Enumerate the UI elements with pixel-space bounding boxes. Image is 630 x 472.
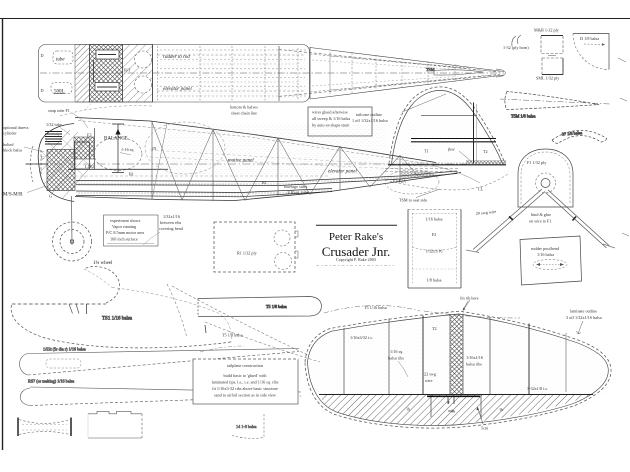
svg-text:R1 1/32 ply: R1 1/32 ply xyxy=(237,251,258,256)
svg-text:experiment shows: experiment shows xyxy=(110,218,141,223)
svg-text:1b: 1b xyxy=(499,407,503,412)
svg-text:balsa ribs: balsa ribs xyxy=(388,356,404,361)
svg-text:fuselage sides: fuselage sides xyxy=(284,184,308,189)
svg-text:cylinder: cylinder xyxy=(3,131,17,136)
svg-text:B/T: B/T xyxy=(124,68,131,73)
svg-text:tailcone outline: tailcone outline xyxy=(356,112,382,117)
svg-text:fuse: fuse xyxy=(448,147,455,152)
svg-text:D 1/8 balsa: D 1/8 balsa xyxy=(580,36,599,41)
svg-text:T2: T2 xyxy=(483,149,488,154)
svg-text:1/32x1/16: 1/32x1/16 xyxy=(163,214,180,219)
svg-text:all sweep & 1/16 balsa: all sweep & 1/16 balsa xyxy=(312,116,350,121)
svg-text:elevator panel: elevator panel xyxy=(328,170,357,175)
svg-text:1-32 (ply horn): 1-32 (ply horn) xyxy=(503,45,529,50)
svg-text:block balsa: block balsa xyxy=(3,148,22,153)
svg-text:SML 1/32 ply: SML 1/32 ply xyxy=(536,76,560,81)
svg-text:TSM to seat side: TSM to seat side xyxy=(399,198,427,203)
svg-text:T5 1/8 balsa: T5 1/8 balsa xyxy=(222,333,243,338)
svg-text:1/16 balsa: 1/16 balsa xyxy=(425,217,442,222)
svg-text:laminate outline: laminate outline xyxy=(570,309,597,314)
svg-text:wire: wire xyxy=(425,378,433,383)
svg-text:1/16x3/32 t.s.: 1/16x3/32 t.s. xyxy=(350,335,373,340)
svg-text:bottom & halves: bottom & halves xyxy=(230,105,258,110)
svg-text:3-32x1/8 t.s.: 3-32x1/8 t.s. xyxy=(527,386,548,391)
svg-text:motive panel: motive panel xyxy=(228,159,254,164)
svg-text:1/16 sq.: 1/16 sq. xyxy=(390,349,403,354)
svg-text:22 swg: 22 swg xyxy=(424,372,437,377)
svg-text:P/C 8.5mm motor area: P/C 8.5mm motor area xyxy=(106,230,144,235)
svg-text:M/S-M/B: M/S-M/B xyxy=(3,193,23,198)
svg-text:R1: R1 xyxy=(262,180,267,185)
svg-text:1/32 tube: 1/32 tube xyxy=(46,122,62,127)
svg-text:L1F2: L1F2 xyxy=(85,164,94,169)
svg-text:3 off 1/32x1/16 balsa: 3 off 1/32x1/16 balsa xyxy=(566,315,602,320)
svg-text:C: C xyxy=(41,155,44,160)
svg-text:1/32t (5r dia r) 1/16 balsa: 1/32t (5r dia r) 1/16 balsa xyxy=(43,347,86,352)
svg-text:on wire to F1: on wire to F1 xyxy=(529,219,551,224)
svg-text:RS7 (or making) 1/16 balsa: RS7 (or making) 1/16 balsa xyxy=(28,379,74,384)
svg-text:G: G xyxy=(49,194,52,199)
svg-text:1 off 1/32x1/16 balsa: 1 off 1/32x1/16 balsa xyxy=(352,118,388,123)
svg-text:tube: tube xyxy=(56,58,65,63)
svg-text:covering bend: covering bend xyxy=(159,226,184,231)
svg-text:bolted: bolted xyxy=(3,142,14,147)
svg-text:5cm: 5cm xyxy=(481,426,489,431)
svg-text:D: D xyxy=(41,88,44,93)
svg-text:Copyright P. Rake 2003: Copyright P. Rake 2003 xyxy=(336,257,376,262)
svg-text:T2: T2 xyxy=(432,326,437,331)
svg-text:1/16 sq. tube: 1/16 sq. tube xyxy=(287,190,309,195)
svg-text:sand to airfoil section as in: sand to airfoil section as in side view xyxy=(214,393,276,398)
svg-text:F2: F2 xyxy=(432,232,436,237)
svg-text:sheet chain line: sheet chain line xyxy=(231,111,257,116)
svg-text:1/16 balsa: 1/16 balsa xyxy=(537,252,554,257)
svg-text:F: F xyxy=(448,401,450,405)
svg-text:1b: 1b xyxy=(406,407,410,412)
svg-text:tailplane construction: tailplane construction xyxy=(227,363,264,368)
svg-text:1/8 balsa: 1/8 balsa xyxy=(426,278,441,283)
svg-text:1/32x1/16: 1/32x1/16 xyxy=(426,249,443,254)
svg-text:B1: B1 xyxy=(129,172,134,177)
svg-text:(N: (N xyxy=(152,146,156,151)
svg-text:T1: T1 xyxy=(424,149,429,154)
svg-text:1¾ wheel: 1¾ wheel xyxy=(93,261,113,266)
svg-text:F2/F2A: F2/F2A xyxy=(393,179,406,184)
svg-text:T5 1/8 balsa: T5 1/8 balsa xyxy=(266,304,287,309)
svg-text:Vapor running: Vapor running xyxy=(112,224,137,229)
svg-text:F1 1/32 ply: F1 1/32 ply xyxy=(527,160,547,165)
svg-text:D: D xyxy=(41,53,44,58)
svg-text:Peter Rake's: Peter Rake's xyxy=(329,231,383,243)
svg-text:build basic to 'glued' with: build basic to 'glued' with xyxy=(224,373,268,378)
svg-text:1a: 1a xyxy=(451,409,455,414)
svg-text:balsa ribs: balsa ribs xyxy=(466,362,482,367)
svg-text:1/16x1/16: 1/16x1/16 xyxy=(466,355,483,360)
svg-text:CL: CL xyxy=(478,187,484,192)
svg-text:TSM: TSM xyxy=(426,67,435,72)
svg-text:TS1 1/16 balsa: TS1 1/16 balsa xyxy=(102,317,133,322)
svg-text:T5 1/16 balsa: T5 1/16 balsa xyxy=(364,305,387,310)
svg-text:M&B 1-32 ply: M&B 1-32 ply xyxy=(534,28,560,33)
svg-text:between ribs: between ribs xyxy=(160,220,182,225)
svg-text:bind & glue: bind & glue xyxy=(531,212,551,217)
svg-text:14 1-8 balsa: 14 1-8 balsa xyxy=(236,424,257,429)
svg-text:500L: 500L xyxy=(54,90,65,95)
svg-text:fit 1/16x3-32 ribs above basic: fit 1/16x3-32 ribs above basic structure xyxy=(212,386,278,391)
svg-text:F3: F3 xyxy=(87,133,91,138)
svg-text:T5M 1/8 balsa: T5M 1/8 balsa xyxy=(511,114,536,119)
svg-text:wires glued afterwise: wires glued afterwise xyxy=(312,110,348,115)
svg-text:160 inch surface: 160 inch surface xyxy=(110,237,138,242)
svg-text:strap tube F1: strap tube F1 xyxy=(48,108,70,113)
svg-text:rudder post/bend: rudder post/bend xyxy=(531,246,560,251)
svg-text:fin rib here: fin rib here xyxy=(460,296,479,301)
svg-text:optional duress: optional duress xyxy=(3,125,29,130)
